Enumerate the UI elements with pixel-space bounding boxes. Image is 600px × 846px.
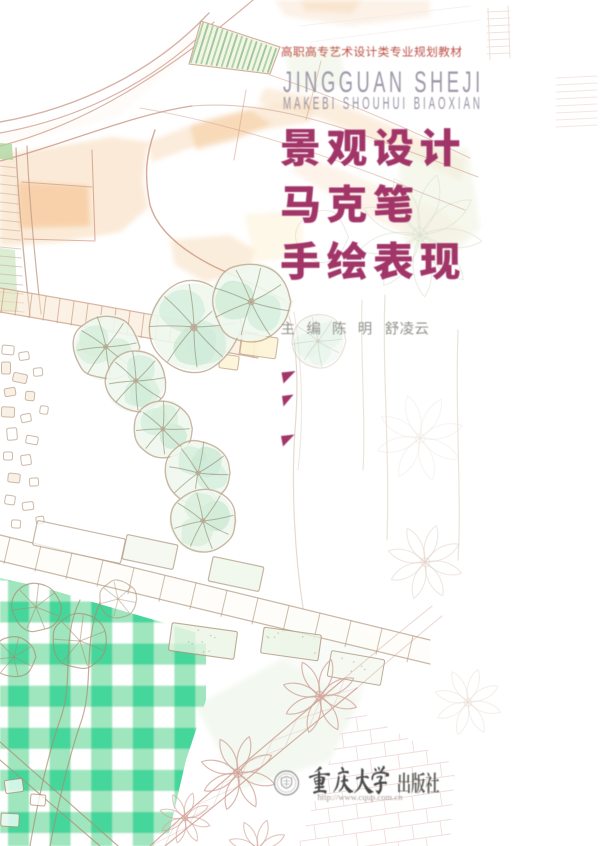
- svg-text:http://www.cqup.com.cn: http://www.cqup.com.cn: [318, 792, 404, 802]
